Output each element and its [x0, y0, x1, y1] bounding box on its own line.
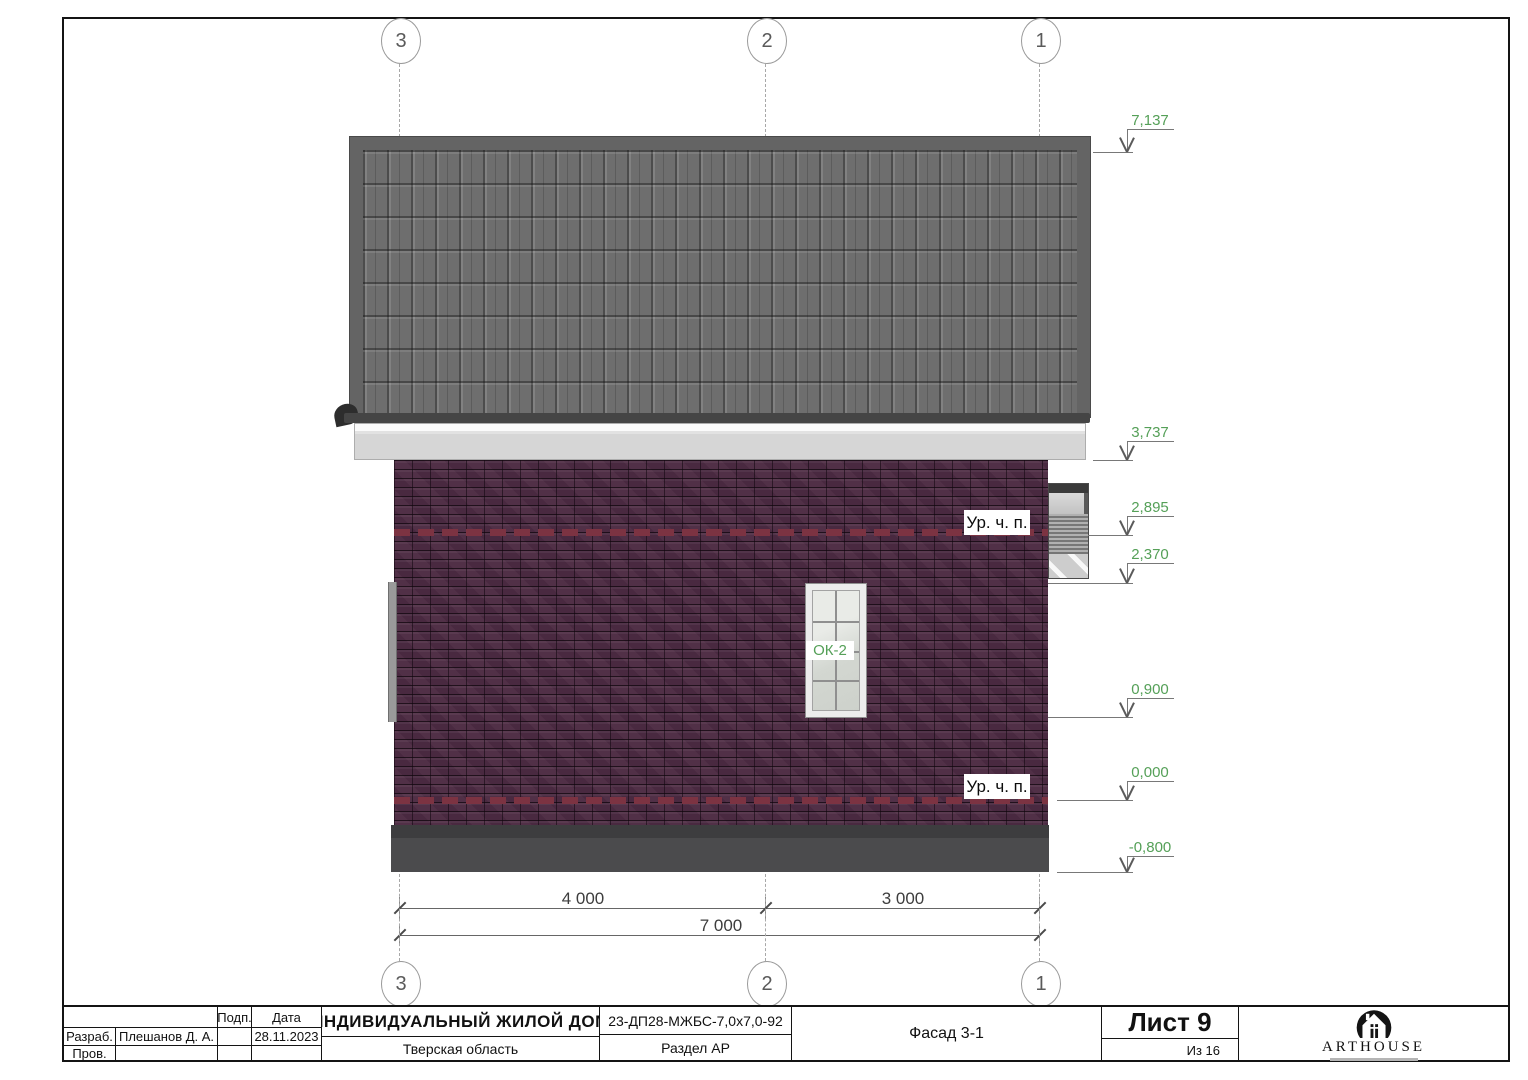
floor-level-label-lower: Ур. ч. п. [964, 774, 1030, 799]
tb-text: Раздел АР [661, 1040, 730, 1056]
tb-text: Дата [272, 1010, 301, 1025]
axis-label: 1 [1035, 973, 1046, 996]
axis-bubble-bottom-2: 2 [747, 961, 787, 1007]
tb-text: Разраб. [66, 1029, 113, 1044]
downspout [388, 582, 397, 722]
level-line [1057, 872, 1133, 873]
side-vent-base [1049, 554, 1088, 578]
elevation-arrow-icon [1119, 857, 1135, 872]
marker-underline [1127, 563, 1174, 564]
tb-empty-cell [252, 1046, 322, 1062]
marker-underline [1127, 129, 1174, 130]
tb-view-title: Фасад 3-1 [792, 1007, 1102, 1062]
level-line [1048, 717, 1133, 718]
window-tag: ОК-2 [806, 641, 854, 660]
elevation-arrow-icon [1119, 520, 1135, 535]
brick-wall [394, 460, 1048, 826]
tb-checked-label: Пров. [64, 1046, 116, 1062]
tb-text: Из 16 [1187, 1043, 1220, 1058]
grid-line-3-top [399, 64, 400, 137]
tb-sheet-number: Лист 9 [1102, 1007, 1239, 1039]
tb-project-location: Тверская область [322, 1037, 600, 1062]
axis-bubble-top-2: 2 [747, 18, 787, 64]
tb-section: Раздел АР [600, 1035, 792, 1062]
grid-line-1-bottom [1039, 874, 1040, 961]
drawing-sheet: 3 2 1 ОК-2 Ур. ч. п. Ур. ч. п. [0, 0, 1528, 1080]
grid-line-2-top [765, 64, 766, 137]
tb-sign-header: Подп. [218, 1007, 252, 1028]
axis-bubble-top-1: 1 [1021, 18, 1061, 64]
axis-label: 3 [395, 30, 406, 53]
window-muntin [813, 680, 859, 682]
tb-text: Пров. [72, 1046, 106, 1061]
marker-underline [1127, 781, 1174, 782]
elevation-value: 0,900 [1124, 681, 1176, 698]
logo-house-icon [1345, 1008, 1403, 1038]
plinth-top-strip [391, 825, 1049, 838]
elevation-value: 7,137 [1124, 112, 1176, 129]
roof-tiles [363, 150, 1077, 417]
axis-bubble-bottom-1: 1 [1021, 961, 1061, 1007]
gutter [344, 413, 1090, 423]
axis-bubble-bottom-3: 3 [381, 961, 421, 1007]
grid-line-3-bottom [399, 874, 400, 961]
tb-text: Подп. [218, 1010, 252, 1025]
tb-developed-label: Разраб. [64, 1028, 116, 1046]
marker-underline [1127, 516, 1174, 517]
window-tag-text: ОК-2 [813, 642, 847, 659]
tb-text: ИНДИВИДУАЛЬНЫЙ ЖИЛОЙ ДОМ [322, 1012, 600, 1032]
axis-label: 1 [1035, 30, 1046, 53]
tb-text: Тверская область [403, 1041, 518, 1057]
marker-underline [1127, 441, 1174, 442]
window-muntin [813, 621, 859, 623]
elevation-arrow-icon [1119, 568, 1135, 583]
masonry-accent-line-lower [394, 797, 1048, 804]
dimension-label-3000: 3 000 [863, 889, 943, 909]
elevation-value: 3,737 [1124, 424, 1176, 441]
floor-level-text: Ур. ч. п. [966, 777, 1027, 797]
arthouse-logo: ARTHOUSE [1239, 1007, 1508, 1062]
dimension-label-4000: 4 000 [543, 889, 623, 909]
elevation-value: 2,370 [1124, 546, 1176, 563]
axis-label: 2 [761, 973, 772, 996]
roof [350, 137, 1090, 417]
tb-empty-cell [64, 1007, 218, 1028]
side-vent-slats [1049, 514, 1088, 554]
grid-line-1-top [1039, 64, 1040, 137]
side-vent [1048, 483, 1089, 579]
plinth [391, 825, 1049, 872]
tb-text: Плешанов Д. А. [119, 1029, 214, 1044]
elevation-arrow-icon [1119, 702, 1135, 717]
elevation-arrow-icon [1119, 137, 1135, 152]
axis-bubble-top-3: 3 [381, 18, 421, 64]
level-line [1048, 583, 1133, 584]
tb-sheet-of: Из 16 [1102, 1039, 1239, 1062]
floor-level-text: Ур. ч. п. [966, 513, 1027, 533]
grid-line-2-bottom [765, 874, 766, 961]
title-block: Разраб. Пров. Плешанов Д. А. Подп. Дата … [62, 1005, 1510, 1062]
elevation-arrow-icon [1119, 445, 1135, 460]
tb-project-title: ИНДИВИДУАЛЬНЫЙ ЖИЛОЙ ДОМ [322, 1007, 600, 1037]
level-line [1057, 800, 1133, 801]
eaves-fascia [354, 423, 1086, 460]
tb-date-header: Дата [252, 1007, 322, 1028]
logo-tagline [1330, 1058, 1418, 1061]
axis-label: 3 [395, 973, 406, 996]
tb-empty-cell [116, 1046, 218, 1062]
tb-empty-cell [218, 1028, 252, 1046]
masonry-accent-line-upper [394, 529, 1048, 536]
tb-empty-cell [218, 1046, 252, 1062]
elevation-value: -0,800 [1124, 839, 1176, 856]
elevation-arrow-icon [1119, 785, 1135, 800]
axis-label: 2 [761, 30, 772, 53]
tb-project-code: 23-ДП28-МЖБС-7,0х7,0-92 [600, 1007, 792, 1035]
side-vent-cap [1049, 484, 1088, 493]
marker-underline [1127, 698, 1174, 699]
tb-text: 28.11.2023 [254, 1029, 318, 1044]
tb-text: Фасад 3-1 [909, 1025, 984, 1043]
dimension-label-7000: 7 000 [681, 916, 761, 936]
tb-text: Лист 9 [1128, 1007, 1211, 1038]
floor-level-label-upper: Ур. ч. п. [964, 510, 1030, 535]
elevation-value: 2,895 [1124, 499, 1176, 516]
side-vent-upper [1049, 493, 1088, 514]
elevation-value: 0,000 [1124, 764, 1176, 781]
tb-developed-by: Плешанов Д. А. [116, 1028, 218, 1046]
dimension-line-spans [400, 908, 1040, 909]
tb-text: 23-ДП28-МЖБС-7,0х7,0-92 [608, 1013, 783, 1029]
tb-date: 28.11.2023 [252, 1028, 322, 1046]
logo-wordmark: ARTHOUSE [1322, 1039, 1425, 1056]
